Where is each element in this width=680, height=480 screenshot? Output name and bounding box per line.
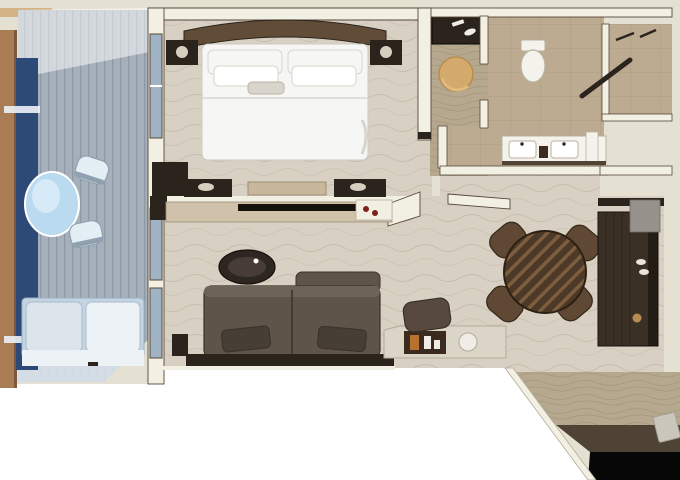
patio-sofa-cushion-left: [26, 302, 82, 352]
balcony-railing: [0, 30, 16, 388]
wall-bedroom-right: [418, 8, 431, 140]
patio-sofa: [22, 298, 144, 366]
patio-sofa-front: [22, 350, 144, 366]
wall-shower-hall: [600, 166, 672, 175]
shower-wall-left: [602, 24, 609, 120]
patio-table-shine: [32, 179, 60, 213]
foot-bench: [248, 182, 326, 195]
toilet-bowl: [521, 50, 545, 82]
dining-table: [504, 231, 586, 313]
wall-living-sill: [150, 366, 395, 370]
tray-item-orange: [410, 335, 419, 350]
desk-chair: [402, 297, 452, 333]
vanity-tray: [539, 146, 548, 158]
double-vanity: [502, 132, 606, 165]
bar-counter-gray: [630, 200, 660, 232]
sofa-pillow-left: [221, 326, 271, 353]
bar-bowl: [633, 314, 642, 323]
bar-cup-2: [639, 269, 649, 275]
red-decor-1: [363, 206, 369, 212]
wall-bathroom-hall: [440, 166, 608, 175]
bed: [202, 44, 368, 160]
dresser-left-decor: [198, 183, 214, 191]
bar-cup-1: [636, 259, 646, 265]
nightstand-left: [166, 40, 198, 65]
vanity-shadow: [502, 161, 606, 165]
patio-sofa-foot: [88, 362, 98, 366]
tray-item-white-2: [434, 340, 440, 349]
console-end-cabinet: [150, 196, 167, 220]
desk-plate: [459, 333, 477, 351]
living-window-2: [150, 288, 162, 358]
patio-sofa-cushion-right: [86, 302, 140, 352]
dresser-right-decor: [350, 183, 366, 191]
floor-plan-svg: Top-down 3D rendered floor plan of a sui…: [0, 0, 680, 480]
nightstand-right: [370, 40, 402, 65]
tray-item-white-1: [424, 336, 431, 349]
lamp-left: [176, 46, 189, 59]
accent-pillow: [248, 82, 284, 94]
tv-screen: [238, 204, 356, 211]
red-decor-2: [372, 210, 378, 216]
bar-cabinet: [598, 198, 664, 346]
bedroom-corner-cabinet: [152, 162, 188, 196]
vanity-nook-floor: [445, 126, 490, 166]
towel-shelf: [586, 132, 598, 162]
sofa-pillow-right: [317, 326, 367, 352]
coffee-table-decor: [254, 259, 259, 264]
shower-wall-bottom: [602, 114, 672, 121]
railing-bracket-top: [4, 106, 40, 113]
faucet-right: [562, 142, 565, 145]
side-table: [172, 334, 188, 356]
wall-top-bathroom: [430, 8, 672, 17]
balcony: [0, 8, 150, 388]
entry-dark-corridor: [588, 452, 680, 480]
wall-dressing-bath-lower: [480, 100, 488, 128]
floor-plan-image: Top-down 3D rendered floor plan of a sui…: [0, 0, 680, 480]
coffee-table-top: [228, 257, 266, 277]
wall-dressing-bath-upper: [480, 16, 488, 64]
lamp-right: [380, 46, 393, 59]
door-jamb-bedroom: [418, 132, 431, 139]
wall-vanity-nook: [438, 126, 447, 168]
faucet-left: [520, 142, 523, 145]
toilet-tank: [521, 40, 545, 51]
living-window-wall: [186, 354, 394, 366]
toilet: [521, 40, 545, 82]
console-shelf-white: [356, 200, 392, 220]
pillow-front-right: [292, 66, 356, 86]
exterior-cutout: [0, 368, 590, 480]
